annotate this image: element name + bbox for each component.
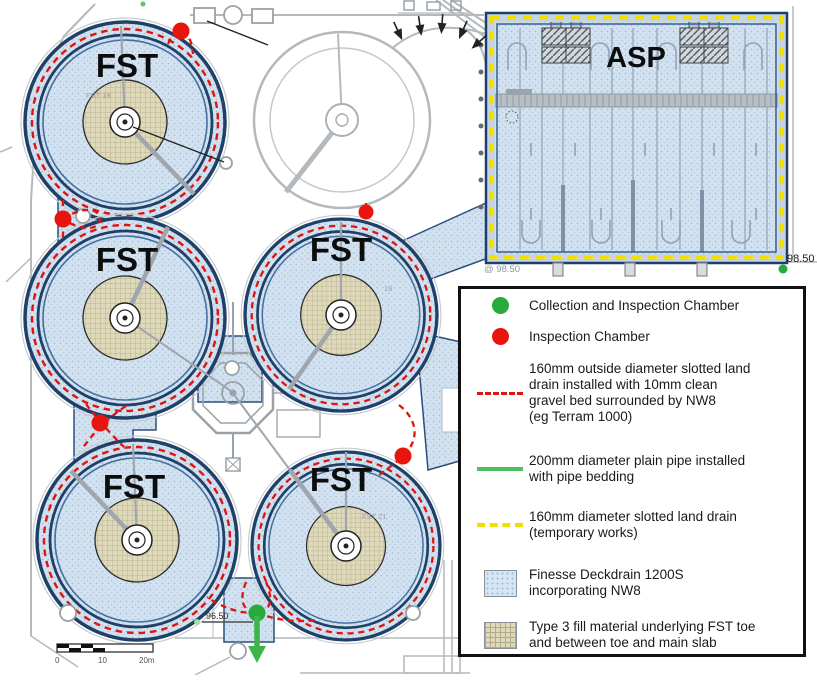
legend-label: Inspection Chamber (529, 329, 795, 345)
legend-item-plain-pipe: 200mm diameter plain pipe installed with… (471, 453, 795, 485)
red-dashed-line-swatch-icon (477, 392, 523, 395)
legend-label: 160mm outside diameter slotted land drai… (529, 361, 795, 425)
scale-tick-20m: 20m (139, 656, 155, 665)
legend-label: Type 3 fill material underlying FST toe … (529, 619, 795, 651)
inspection-chamber-dot (173, 23, 190, 40)
scale-tick-10: 10 (98, 656, 107, 665)
collection-chamber-swatch-icon (492, 297, 509, 314)
legend-item-inspection-chamber: Inspection Chamber (471, 328, 795, 345)
legend-label: Finesse Deckdrain 1200S incorporating NW… (529, 567, 795, 599)
level-collection-chamber: 96.50 (206, 611, 229, 621)
legend-item-finesse-deckdrain: Finesse Deckdrain 1200S incorporating NW… (471, 567, 795, 599)
inspection-chamber-dot (359, 205, 374, 220)
scale-tick-0: 0 (55, 656, 60, 665)
tank-id-mid-right: 19 (384, 284, 392, 293)
fst-label-bottom-right: FST (310, 461, 372, 498)
yellow-dashed-line-swatch-icon (477, 523, 523, 527)
white-tank (254, 32, 430, 208)
fst-hub-mid-right (326, 300, 356, 330)
site-plan-drawing: FST 18 19 FST 21 FST FST FST FST FST (0, 0, 817, 675)
legend: Collection and Inspection Chamber Inspec… (458, 286, 806, 657)
legend-item-collection-chamber: Collection and Inspection Chamber (471, 297, 795, 314)
road-arrows (390, 14, 490, 52)
legend-label: Collection and Inspection Chamber (529, 298, 795, 314)
legend-item-slotted-land-drain: 160mm outside diameter slotted land drai… (471, 361, 795, 425)
type3-fill-swatch-icon (484, 622, 517, 649)
legend-label: 200mm diameter plain pipe installed with… (529, 453, 795, 485)
legend-item-type3-fill: Type 3 fill material underlying FST toe … (471, 619, 795, 651)
level-asp-bottom-left: @ 98.50 (484, 264, 520, 275)
asp-collection-dot (779, 265, 788, 274)
legend-label: 160mm diameter slotted land drain (tempo… (529, 509, 795, 541)
inspection-chamber-dot (55, 211, 72, 228)
asp-label: ASP (606, 42, 666, 74)
fst-hub-mid-left (110, 303, 140, 333)
fst-label-mid-right: FST (310, 231, 372, 268)
fst-label-bottom-left: FST (103, 468, 165, 505)
fst-label-mid-left: FST (96, 241, 158, 278)
asp-plant: ASP (479, 13, 788, 276)
inspection-chamber-swatch-icon (492, 328, 509, 345)
tank-id-top-left: FST 18 (86, 91, 110, 100)
level-asp-bottom-right: 98.50 (787, 253, 815, 265)
tank-id-bottom-right: FST 21 (362, 512, 386, 521)
green-line-swatch-icon (477, 467, 523, 471)
outfall-arrowhead (248, 646, 266, 663)
deckdrain-fill-swatch-icon (484, 570, 517, 597)
legend-item-temporary-land-drain: 160mm diameter slotted land drain (tempo… (471, 509, 795, 541)
inspection-chamber-dot (395, 448, 412, 465)
fst-hub-bottom-right (331, 531, 361, 561)
fst-hub-bottom-left (122, 525, 152, 555)
fst-hub-top-left (110, 107, 140, 137)
fst-label-top-left: FST (96, 47, 158, 84)
inspection-chamber-dot (92, 415, 109, 432)
